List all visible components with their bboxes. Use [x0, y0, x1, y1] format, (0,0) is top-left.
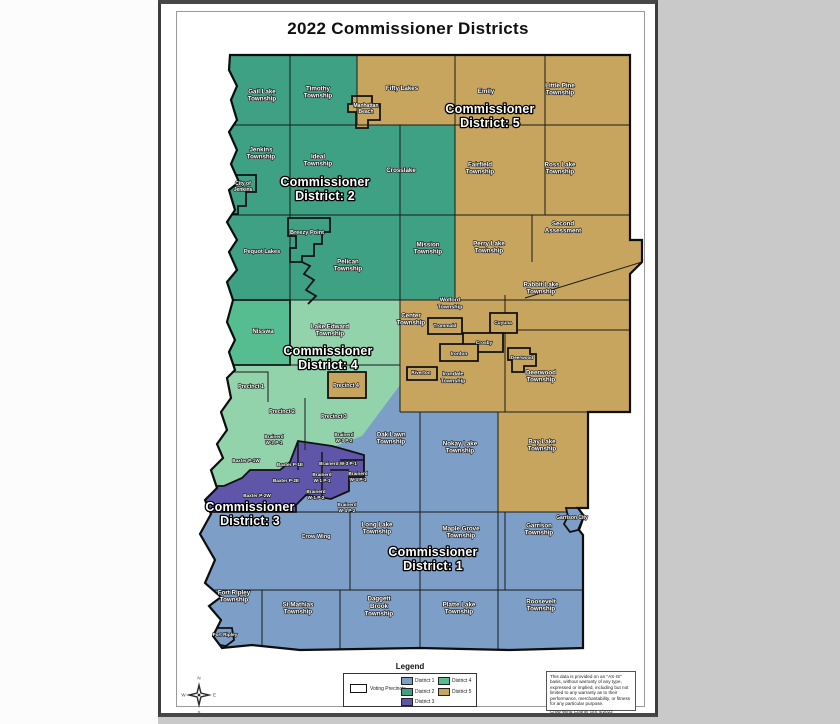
map-label: Crosslake [386, 167, 416, 174]
map-label: Deerwood [511, 355, 533, 360]
map-label: City ofJenkins [234, 181, 253, 193]
map-label: Precinct 2 [269, 409, 295, 415]
legend-column-2: District 4 District 5 [438, 677, 471, 698]
legend-box: Voting Precincts District 1 District 2 D… [343, 673, 477, 707]
district-5-label: District 5 [452, 689, 471, 695]
disclaimer-text: This data is provided on an "AS-IS" basi… [550, 674, 632, 706]
county-map: Gail LakeTownshipTimothyTownshipFifty La… [0, 0, 840, 724]
map-label: Ross LakeTownship [545, 161, 577, 175]
legend-item-district-3: District 3 [401, 698, 434, 706]
map-label: Precinct 1 [238, 384, 264, 390]
map-label: Breezy Point [290, 230, 324, 236]
map-label: Garrison City [556, 515, 588, 521]
nisswa-area [210, 300, 290, 365]
compass-west: W [181, 693, 186, 698]
map-label: St MathiasTownship [283, 601, 315, 615]
map-label: Precinct 4 [333, 383, 359, 389]
compass-east: E [213, 693, 216, 698]
legend-title: Legend [343, 662, 477, 671]
map-label: Crow Wing [301, 534, 331, 540]
map-label: Precinct 3 [321, 414, 347, 420]
map-label: Pequot Lakes [244, 249, 280, 255]
map-label: Riverton [411, 370, 431, 376]
map-label: Gail LakeTownship [248, 88, 277, 102]
map-label: Ironton [451, 351, 468, 357]
map-label: Fifty Lakes [386, 85, 419, 92]
map-label: BrainerdW-4 P-2 [337, 502, 356, 513]
legend-item-district-4: District 4 [438, 677, 471, 685]
map-label: Baxter P-2W [243, 493, 271, 498]
compass-north: N [197, 676, 200, 681]
map-label: Lake EdwardTownship [311, 323, 349, 337]
legend-item-district-5: District 5 [438, 688, 471, 696]
compass-star [186, 682, 212, 708]
fort-ripley-city-area [214, 628, 234, 646]
map-label: BrainerdW-2 P-1 [264, 434, 283, 445]
legend-item-district-2: District 2 [401, 688, 434, 696]
map-label: Bay LakeTownship [528, 438, 557, 452]
map-label: Maple GroveTownship [442, 525, 480, 539]
legend-item-district-1: District 1 [401, 677, 434, 685]
map-label: Oak LawnTownship [376, 431, 405, 445]
district-5-swatch [438, 688, 450, 696]
legend: Legend Voting Precincts District 1 Distr… [343, 662, 477, 707]
map-label: DeerwoodTownship [526, 369, 556, 383]
legend-column-1: District 1 District 2 District 3 [401, 677, 434, 709]
map-label: FairfieldTownship [466, 161, 495, 175]
map-label: Trommald [434, 323, 457, 329]
district-4-label: District 4 [452, 678, 471, 684]
map-label: BrainerdW-4 P-1 [348, 471, 367, 482]
map-label: GarrisonTownship [525, 522, 554, 536]
map-credit: Crow Wing County GIS 4/2022 [550, 709, 632, 714]
screen: 2022 Commissioner Districts [0, 0, 840, 724]
map-label: Brainerd W-3 P-1 [319, 461, 357, 466]
map-label: Nokay LakeTownship [443, 440, 478, 454]
map-label: Long LakeTownship [362, 521, 393, 535]
map-label: Rabbit LakeTownship [523, 281, 559, 295]
map-label: MissionTownship [414, 241, 443, 255]
district-3-swatch [401, 698, 413, 706]
map-label: WolfordTownship [438, 298, 463, 311]
map-label: RooseveltTownship [526, 598, 556, 612]
district-3-label: District 3 [415, 699, 434, 705]
map-label: Baxter P-2E [273, 478, 299, 483]
bay-lake-area [498, 412, 588, 512]
district-2-swatch [401, 688, 413, 696]
disclaimer-box: This data is provided on an "AS-IS" basi… [546, 671, 636, 711]
map-label: BrainerdW-1 P-1 [312, 472, 331, 483]
map-label: PelicanTownship [334, 258, 363, 272]
district-4-swatch [438, 677, 450, 685]
map-label: Fort RipleyTownship [218, 589, 251, 603]
map-label: Platte LakeTownship [443, 601, 476, 615]
compass-rose: N E S W [181, 674, 217, 716]
map-label: JenkinsTownship [247, 146, 276, 160]
district-2-label: District 2 [415, 689, 434, 695]
map-label: IrondaleTownship [441, 372, 466, 385]
voting-precincts-swatch [350, 684, 367, 693]
map-label: Little PineTownship [545, 82, 575, 96]
map-label: Crosby [476, 340, 493, 346]
map-label: Perry LakeTownship [473, 240, 505, 254]
map-label: Nisswa [252, 328, 274, 335]
legend-voting-precincts: Voting Precincts [350, 684, 406, 693]
map-label: TimothyTownship [304, 85, 333, 99]
district-1-label: District 1 [415, 678, 434, 684]
map-label: Fort Ripley [213, 632, 238, 637]
compass-south: S [197, 710, 200, 715]
map-label: Baxter P-1E [277, 462, 303, 467]
map-label: Baxter P-1W [232, 458, 260, 463]
map-label: Emily [478, 88, 495, 95]
map-label: Cuyuna [494, 320, 512, 326]
map-label: BrainerdW-1 P-2 [306, 489, 325, 500]
district-1-swatch [401, 677, 413, 685]
map-label: BrainerdW-3 P-2 [334, 432, 353, 443]
